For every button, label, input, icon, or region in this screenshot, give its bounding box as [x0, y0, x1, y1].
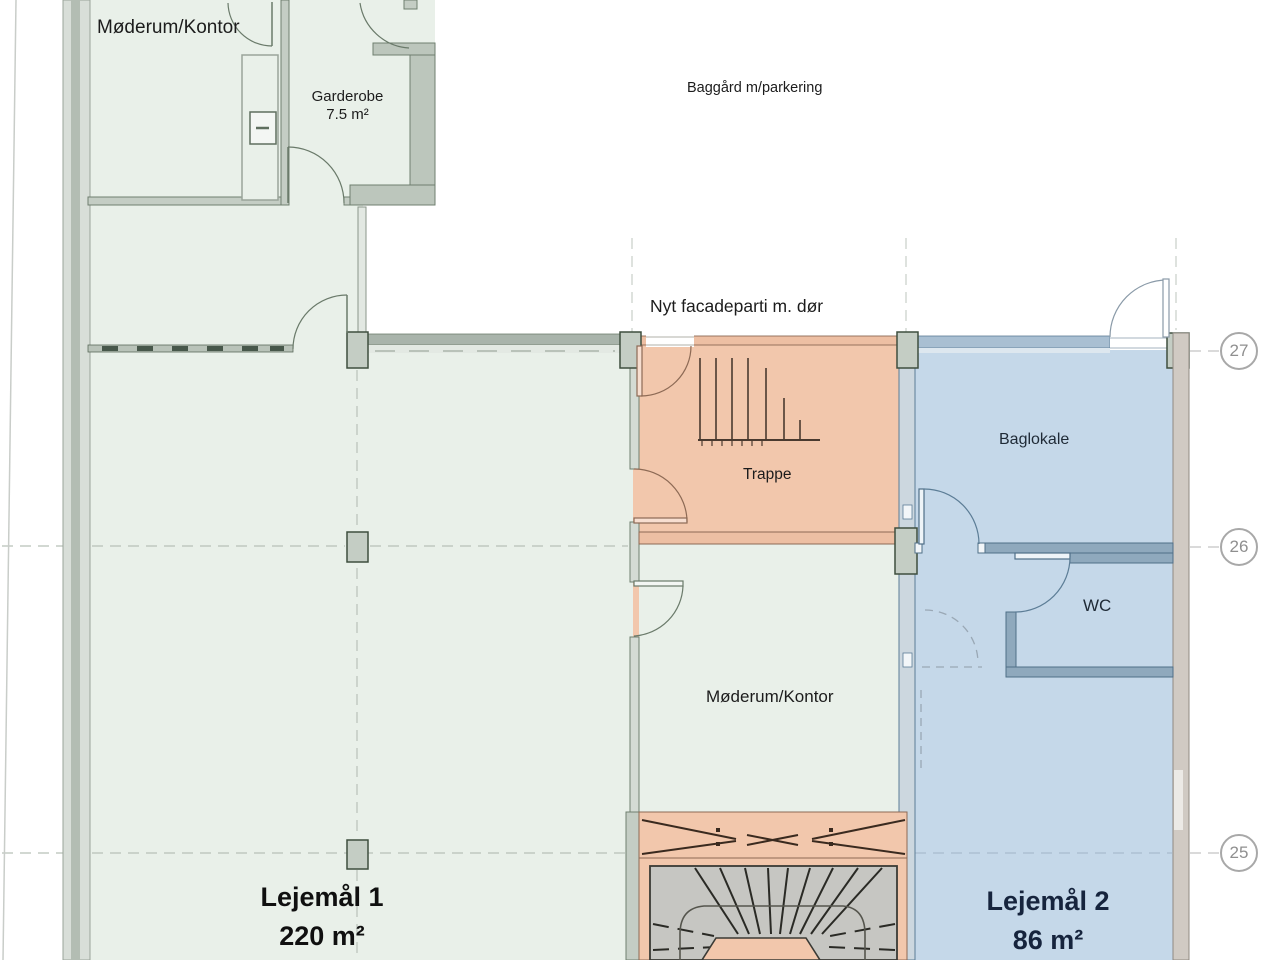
annotation-facade-note: Nyt facadeparti m. dør — [650, 296, 823, 317]
tenancy1-area: 220 m² — [232, 917, 412, 956]
facade-wall-lejemaal2 — [918, 336, 1110, 348]
column-facade-1 — [347, 332, 368, 368]
grid-bubble-27: 27 — [1220, 332, 1258, 370]
window-band-lejemaal1 — [88, 345, 293, 352]
wall-upper-arm-right — [358, 207, 366, 352]
tenancy2-label: Lejemål 2 86 m² — [958, 882, 1138, 960]
floor-fills — [63, 0, 1173, 960]
tenancy1-name: Lejemål 1 — [232, 878, 412, 917]
stair-curved — [639, 858, 907, 960]
garderobe-name: Garderobe — [290, 88, 405, 106]
wall-right-outer — [1173, 333, 1189, 960]
room-label-moderum-top: Møderum/Kontor — [97, 17, 240, 39]
facade-wall-gray — [368, 334, 622, 345]
wall-baglokale-bottom — [980, 543, 1173, 553]
wall-wc-top — [1070, 553, 1173, 563]
label-baggard: Baggård m/parkering — [687, 80, 822, 96]
grid-bubble-25: 25 — [1220, 834, 1258, 872]
column-center-right — [895, 528, 917, 574]
room-lejemaal1-upper-floor — [88, 205, 363, 355]
tenancy2-name: Lejemål 2 — [958, 882, 1138, 921]
stair-landing — [702, 938, 820, 960]
column-grid26 — [347, 532, 368, 562]
room-label-trappe: Trappe — [743, 466, 792, 484]
column-facade-3 — [897, 332, 918, 368]
grid-bubble-26: 26 — [1220, 528, 1258, 566]
site-boundary-line — [3, 0, 16, 960]
floor-plan-stage: Møderum/Kontor Garderobe 7.5 m² Baggård … — [0, 0, 1280, 960]
stair-winder-band — [639, 812, 907, 858]
room-label-moderum-center: Møderum/Kontor — [706, 687, 834, 707]
room-label-wc: WC — [1083, 596, 1111, 616]
tenancy2-area: 86 m² — [958, 921, 1138, 960]
wall-wc-bottom — [1006, 667, 1173, 677]
closet-moderum-top — [242, 55, 278, 200]
garderobe-area: 7.5 m² — [290, 106, 405, 124]
room-label-baglokale: Baglokale — [999, 431, 1069, 449]
tenancy1-label: Lejemål 1 220 m² — [232, 878, 412, 956]
floor-plan-drawing — [0, 0, 1280, 960]
column-grid25 — [347, 840, 368, 869]
wall-trappe-moderum — [639, 532, 899, 544]
room-label-garderobe: Garderobe 7.5 m² — [290, 88, 405, 124]
wall-shaft-vertical — [410, 43, 435, 205]
